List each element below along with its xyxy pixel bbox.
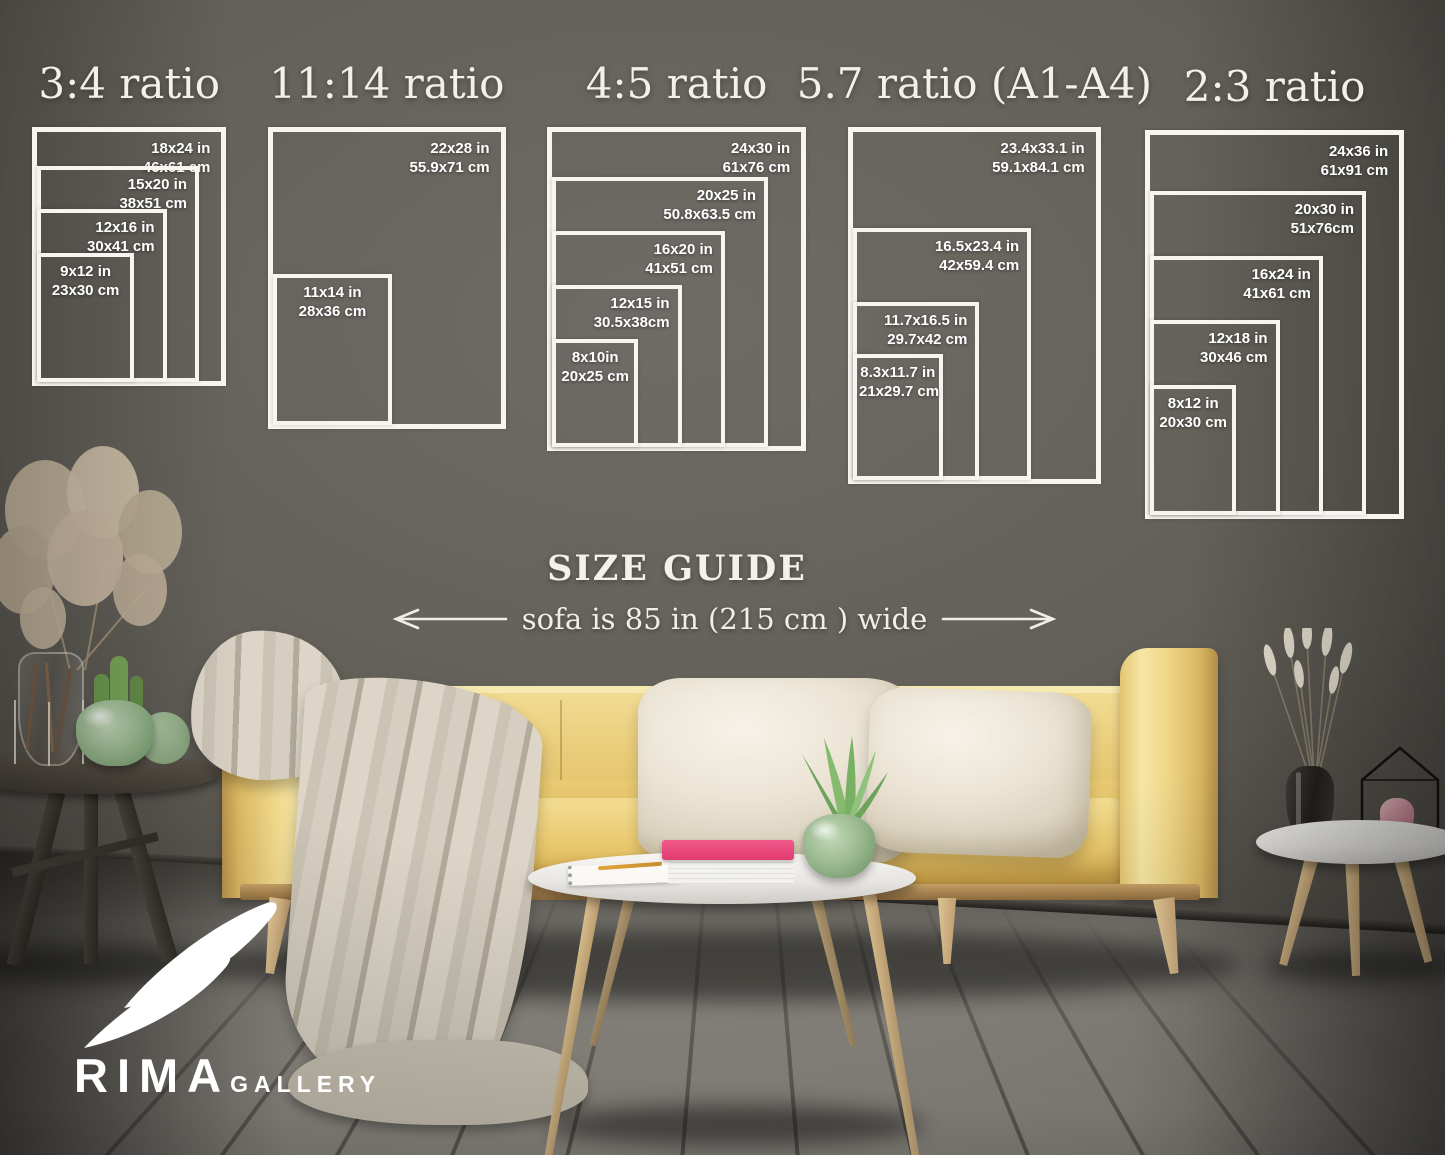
size-label: 23.4x33.1 in59.1x84.1 cm bbox=[992, 139, 1085, 177]
sofa-width-note: sofa is 85 in (215 cm ) wide bbox=[522, 602, 927, 636]
size-label: 11x14 in28x36 cm bbox=[279, 283, 386, 321]
size-guide-heading: SIZE GUIDE bbox=[377, 548, 977, 589]
size-label: 16.5x23.4 in42x59.4 cm bbox=[935, 237, 1019, 275]
size-rect-8x10in: 8x10in20x25 cm bbox=[552, 339, 638, 447]
size-label: 8x10in20x25 cm bbox=[558, 348, 632, 386]
ratio-group-4-5: 4:5 ratio24x30 in61x76 cm20x25 in50.8x63… bbox=[547, 127, 806, 451]
size-label: 24x36 in61x91 cm bbox=[1321, 142, 1389, 180]
size-label: 9x12 in23x30 cm bbox=[43, 262, 128, 300]
brand-logo: RIMAGALLERY bbox=[68, 896, 408, 1116]
ratio-group-2-3: 2:3 ratio24x36 in61x91 cm20x30 in51x76cm… bbox=[1145, 130, 1404, 519]
size-label: 8.3x11.7 in21x29.7 cm bbox=[859, 363, 937, 401]
size-label: 24x30 in61x76 cm bbox=[723, 139, 791, 177]
size-label: 15x20 in38x51 cm bbox=[119, 175, 187, 213]
logo-swoosh-icon bbox=[68, 896, 318, 1056]
size-rect-8.3x11.7in: 8.3x11.7 in21x29.7 cm bbox=[853, 354, 943, 480]
size-rect-9x12in: 9x12 in23x30 cm bbox=[37, 253, 134, 383]
size-rect-11x14in: 11x14 in28x36 cm bbox=[273, 274, 392, 425]
size-label: 16x20 in41x51 cm bbox=[645, 240, 713, 278]
size-label: 20x25 in50.8x63.5 cm bbox=[663, 186, 756, 224]
size-guide-poster: 3:4 ratio18x24 in46x61 cm15x20 in38x51 c… bbox=[0, 0, 1445, 1155]
logo-text: RIMAGALLERY bbox=[74, 1048, 381, 1103]
ratio-group-11-14: 11:14 ratio22x28 in55.9x71 cm11x14 in28x… bbox=[268, 127, 506, 429]
right-arrow-icon bbox=[941, 606, 1059, 632]
ratio-group-3-4: 3:4 ratio18x24 in46x61 cm15x20 in38x51 c… bbox=[32, 127, 226, 386]
size-label: 16x24 in41x61 cm bbox=[1243, 265, 1311, 303]
ratio-group-5-7: 5.7 ratio (A1-A4)23.4x33.1 in59.1x84.1 c… bbox=[848, 127, 1101, 484]
size-label: 12x18 in30x46 cm bbox=[1200, 329, 1268, 367]
ratio-title-2-3: 2:3 ratio bbox=[1067, 62, 1445, 111]
logo-brand: RIMA bbox=[74, 1048, 230, 1103]
size-rect-8x12in: 8x12 in20x30 cm bbox=[1150, 385, 1236, 515]
left-arrow-icon bbox=[390, 606, 508, 632]
size-label: 12x16 in30x41 cm bbox=[87, 218, 155, 256]
logo-suffix: GALLERY bbox=[230, 1071, 381, 1098]
size-label: 12x15 in30.5x38cm bbox=[594, 294, 670, 332]
size-label: 8x12 in20x30 cm bbox=[1156, 394, 1230, 432]
size-label: 11.7x16.5 in29.7x42 cm bbox=[884, 311, 967, 349]
size-label: 20x30 in51x76cm bbox=[1291, 200, 1354, 238]
size-label: 22x28 in55.9x71 cm bbox=[410, 139, 490, 177]
sofa-width-note-row: sofa is 85 in (215 cm ) wide bbox=[392, 602, 1057, 636]
